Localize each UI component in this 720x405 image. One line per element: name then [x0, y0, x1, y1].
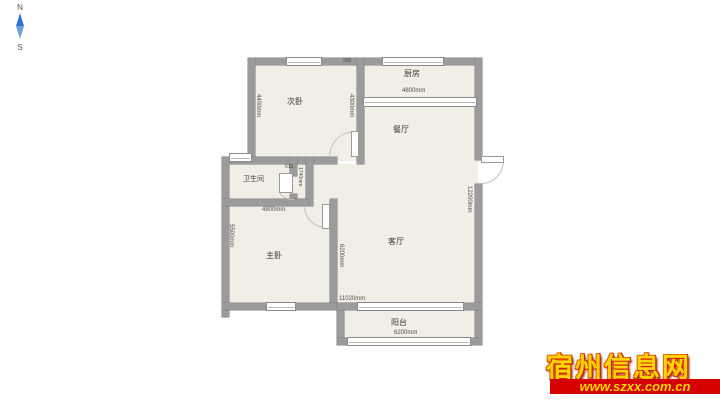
room-label-secondary-bedroom: 次卧 [287, 96, 303, 107]
dim-master-height: 5500mm [228, 224, 234, 247]
compass-needle-icon [14, 13, 26, 44]
dim-bathroom-niche: 610 [285, 165, 293, 170]
floor-kitchen [361, 61, 478, 101]
room-label-master-bedroom: 主卧 [266, 250, 282, 261]
dim-living-right: 12200mm [466, 186, 472, 213]
dim-living-left: 6200mm [338, 244, 344, 267]
wall [330, 199, 337, 310]
wall [248, 58, 482, 65]
wall [475, 184, 482, 345]
room-label-bathroom: 卫生间 [243, 174, 264, 184]
dim-secondary-bedroom-right: 4300mm [348, 94, 354, 117]
watermark-site-url: www.szxx.com.cn [580, 379, 691, 394]
compass-north-label: N [17, 4, 23, 13]
dim-secondary-bedroom-top: 900 [343, 59, 351, 64]
window-balcony-slider [357, 302, 464, 311]
room-label-balcony: 阳台 [391, 317, 407, 328]
wall [475, 58, 482, 160]
watermark-banner: www.szxx.com.cn [550, 379, 720, 394]
door-secondary-bedroom [351, 131, 359, 157]
dim-balcony-width: 6200mm [394, 330, 417, 336]
window-secondary-bedroom [286, 57, 322, 66]
room-label-living: 客厅 [388, 236, 404, 247]
window-bathroom [229, 153, 252, 162]
window-kitchen-pass [363, 97, 477, 107]
window-balcony-outer [347, 337, 471, 346]
dim-living-bottom: 11020mm [339, 296, 365, 302]
wall [337, 303, 358, 310]
window-kitchen-top [382, 57, 444, 66]
compass-south-label: S [17, 44, 22, 53]
wall [222, 199, 308, 206]
room-label-kitchen: 厨房 [404, 68, 420, 79]
room-label-dining: 餐厅 [393, 124, 409, 135]
wall [248, 58, 255, 164]
dim-kitchen-width: 4800mm [402, 88, 425, 94]
dim-hall-height: 1740mm [297, 167, 302, 186]
wall [463, 303, 482, 310]
dim-master-width: 4800mm [262, 207, 285, 213]
door-entry [481, 156, 504, 163]
dim-secondary-bedroom-left: 4400mm [255, 94, 261, 117]
door-bathroom [279, 173, 293, 193]
door-master-bedroom [322, 204, 330, 229]
compass: N S [8, 4, 32, 53]
window-master-bedroom [266, 302, 296, 311]
door-arc [482, 160, 504, 184]
